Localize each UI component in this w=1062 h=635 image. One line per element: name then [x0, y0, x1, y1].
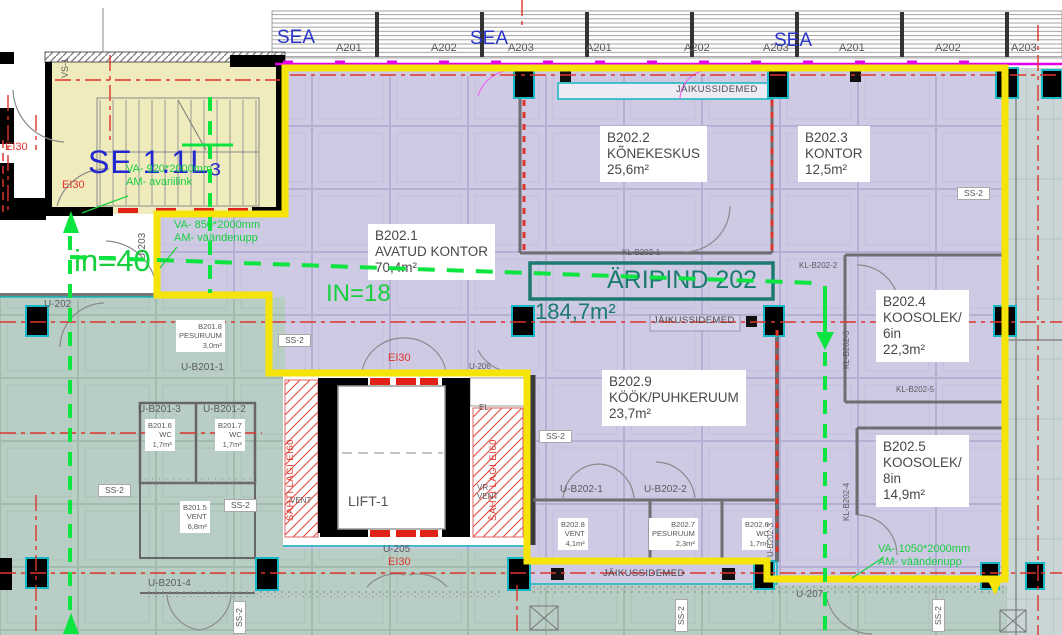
escape-route-overlay — [0, 0, 1062, 635]
floor-plan-canvas: A201A202A203A201A202A203A201A202A203SEAS… — [0, 0, 1062, 635]
escape-arrows — [63, 211, 834, 634]
